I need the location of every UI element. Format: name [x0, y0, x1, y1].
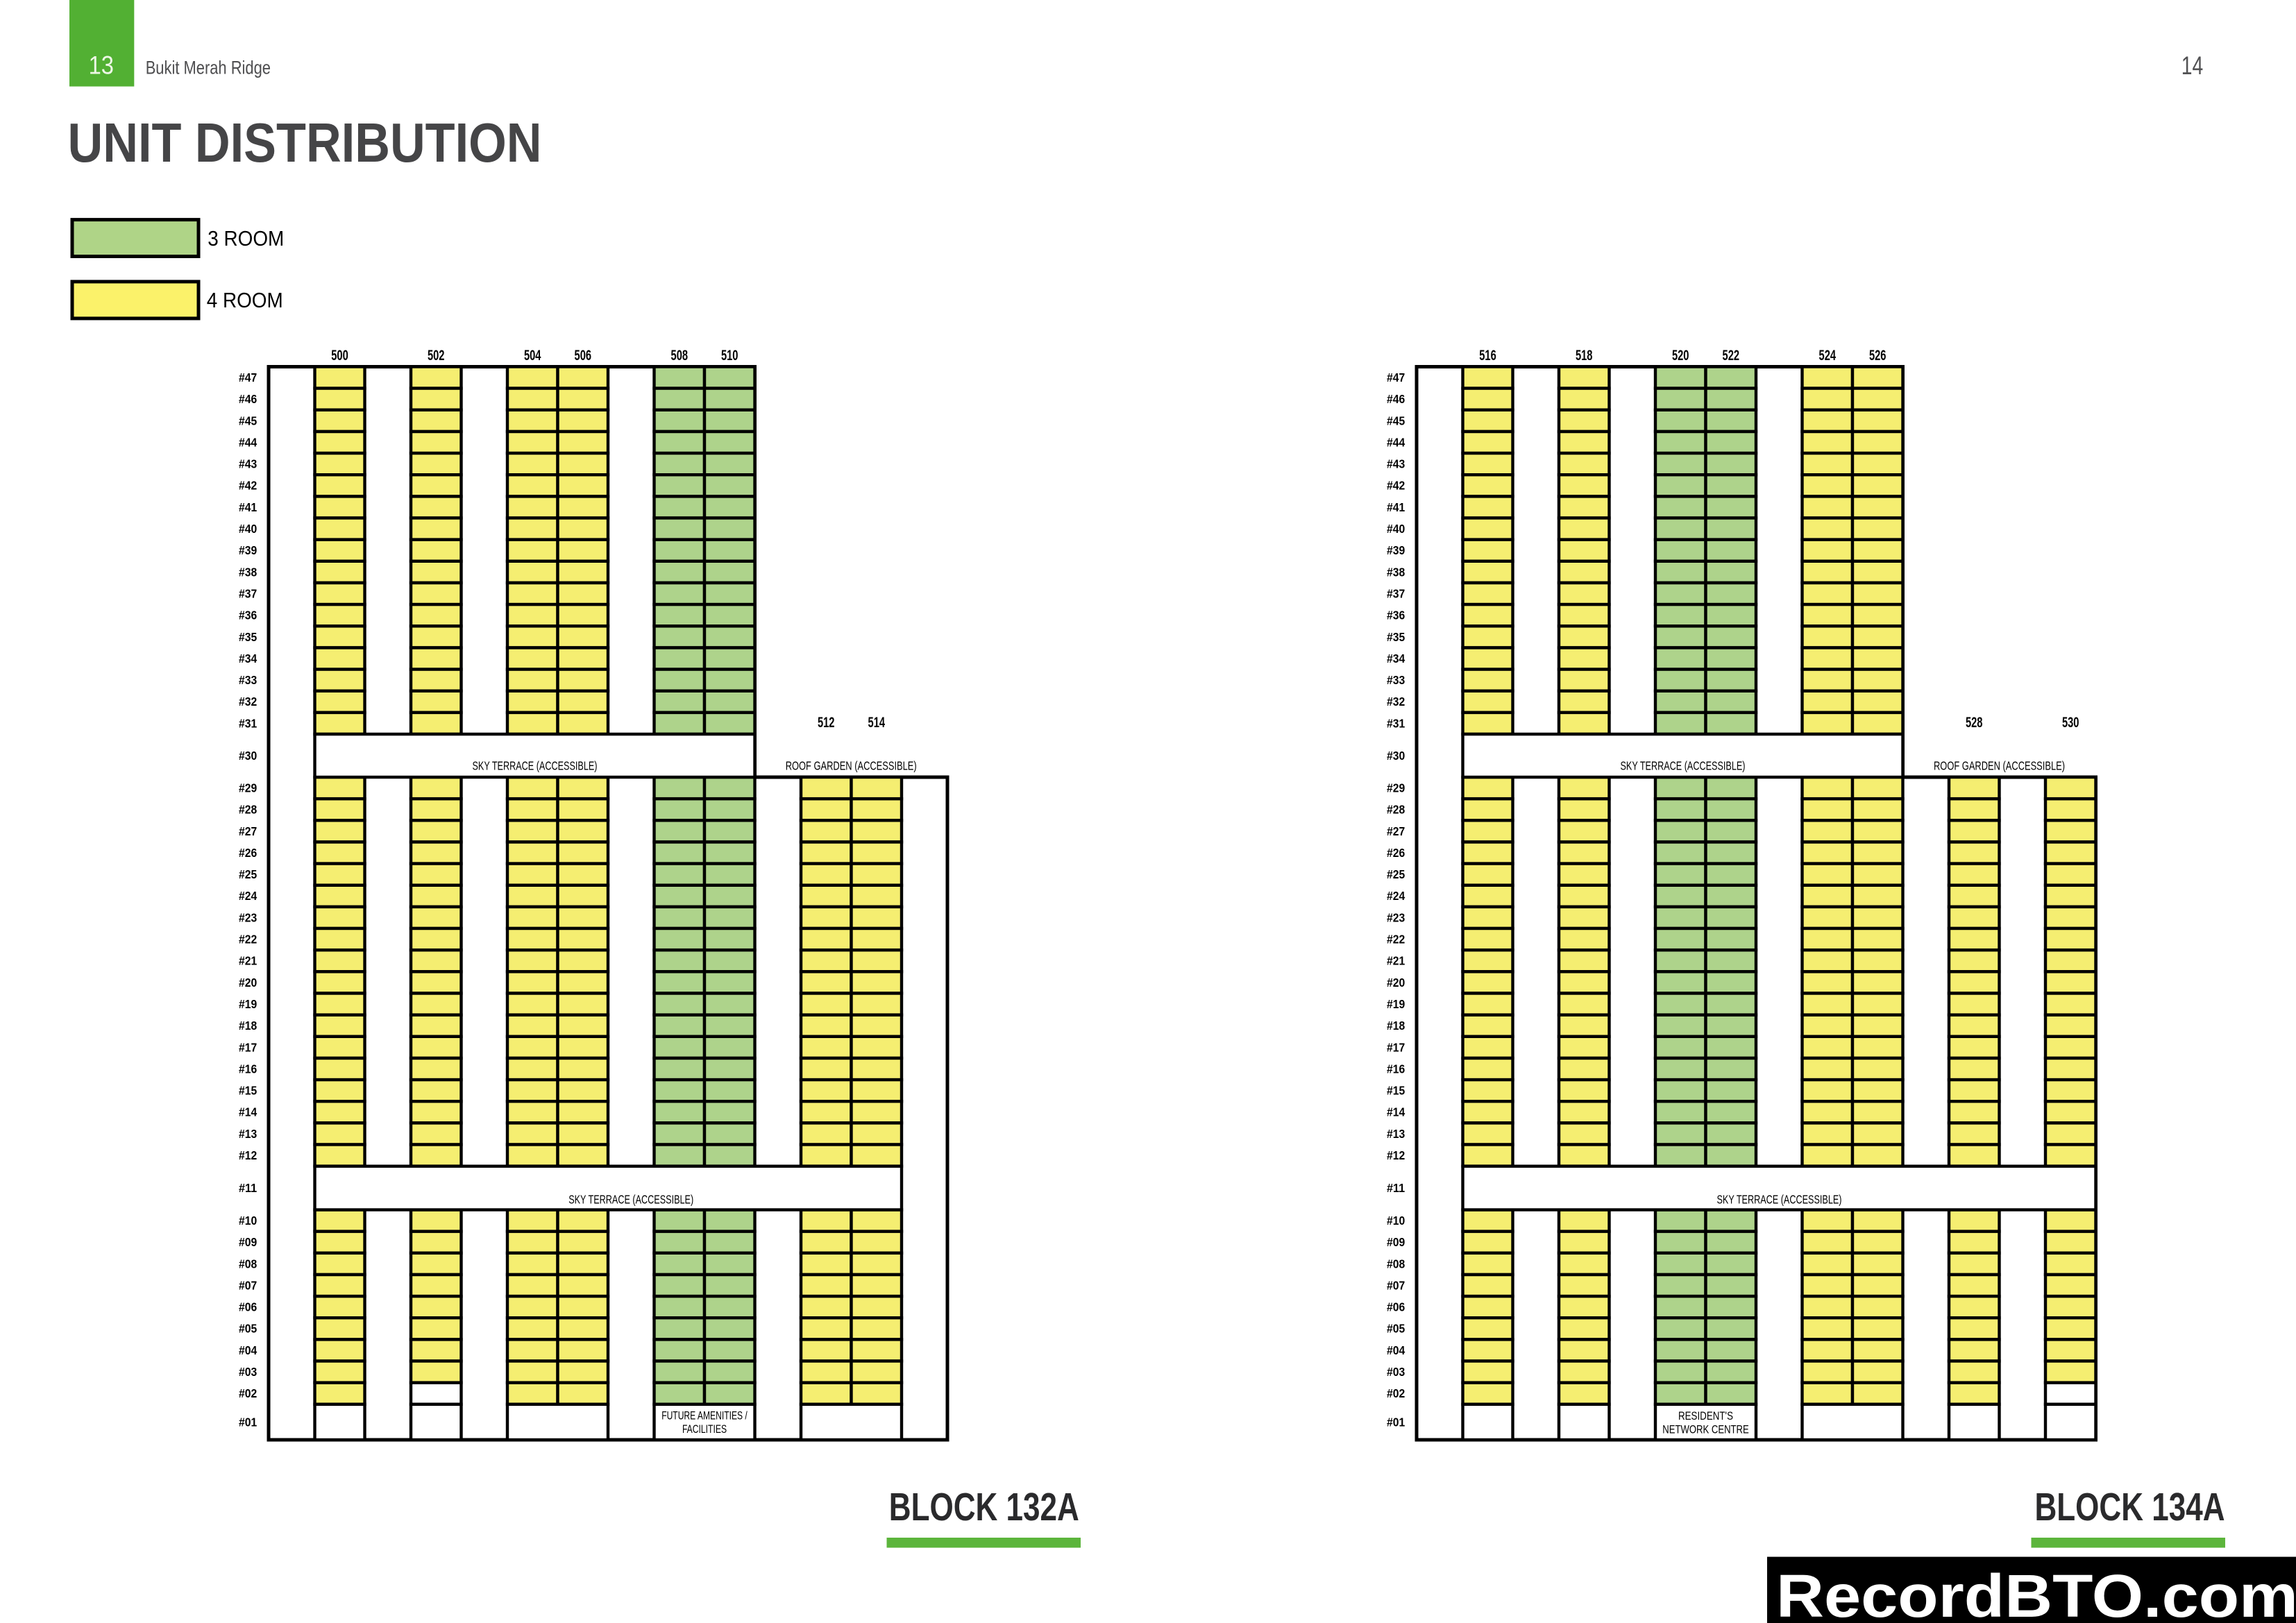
- svg-text:#32: #32: [1387, 695, 1405, 708]
- svg-text:#32: #32: [239, 695, 257, 708]
- svg-text:#40: #40: [1387, 522, 1405, 536]
- svg-text:#25: #25: [239, 867, 258, 881]
- svg-text:ROOF GARDEN (ACCESSIBLE): ROOF GARDEN (ACCESSIBLE): [1934, 759, 2065, 773]
- svg-text:NETWORK CENTRE: NETWORK CENTRE: [1662, 1422, 1749, 1436]
- svg-text:506: 506: [575, 347, 592, 364]
- svg-text:516: 516: [1479, 347, 1496, 364]
- svg-text:#08: #08: [239, 1257, 258, 1271]
- svg-text:13: 13: [89, 51, 114, 80]
- svg-text:#03: #03: [1387, 1365, 1405, 1379]
- svg-text:#41: #41: [239, 500, 258, 514]
- svg-text:#26: #26: [1387, 846, 1405, 860]
- svg-text:FACILITIES: FACILITIES: [682, 1422, 727, 1436]
- svg-text:#40: #40: [239, 522, 257, 536]
- svg-text:#02: #02: [239, 1386, 257, 1400]
- svg-text:#44: #44: [1387, 435, 1406, 449]
- svg-text:#06: #06: [1387, 1300, 1405, 1314]
- svg-text:500: 500: [331, 347, 348, 364]
- svg-text:#22: #22: [239, 933, 257, 946]
- svg-text:502: 502: [428, 347, 445, 364]
- svg-text:ROOF GARDEN (ACCESSIBLE): ROOF GARDEN (ACCESSIBLE): [786, 759, 917, 773]
- svg-text:#14: #14: [239, 1105, 258, 1119]
- svg-text:#35: #35: [1387, 630, 1406, 644]
- svg-text:BLOCK 132A: BLOCK 132A: [889, 1485, 1079, 1529]
- svg-text:#14: #14: [1387, 1105, 1406, 1119]
- svg-text:524: 524: [1819, 347, 1837, 364]
- svg-text:#45: #45: [239, 414, 258, 427]
- svg-text:Bukit Merah Ridge: Bukit Merah Ridge: [146, 58, 271, 78]
- svg-text:#01: #01: [1387, 1415, 1406, 1429]
- svg-text:#11: #11: [239, 1181, 258, 1195]
- svg-text:#47: #47: [239, 371, 257, 384]
- svg-text:#08: #08: [1387, 1257, 1406, 1271]
- svg-text:#43: #43: [239, 457, 257, 471]
- svg-text:#15: #15: [239, 1084, 258, 1098]
- svg-text:#33: #33: [1387, 673, 1405, 687]
- svg-text:#02: #02: [1387, 1386, 1405, 1400]
- svg-text:#10: #10: [1387, 1214, 1405, 1227]
- svg-text:#31: #31: [1387, 716, 1406, 730]
- svg-text:512: 512: [818, 714, 835, 731]
- svg-text:#27: #27: [1387, 824, 1405, 838]
- svg-text:#24: #24: [239, 889, 258, 903]
- svg-text:SKY TERRACE (ACCESSIBLE): SKY TERRACE (ACCESSIBLE): [473, 759, 598, 773]
- svg-text:#05: #05: [239, 1322, 258, 1336]
- svg-text:#39: #39: [239, 543, 257, 557]
- svg-text:#36: #36: [1387, 609, 1405, 622]
- svg-text:#21: #21: [239, 954, 258, 968]
- svg-text:#47: #47: [1387, 371, 1405, 384]
- svg-text:#19: #19: [239, 997, 257, 1011]
- svg-text:#03: #03: [239, 1365, 257, 1379]
- svg-text:#43: #43: [1387, 457, 1405, 471]
- svg-text:528: 528: [1966, 714, 1983, 731]
- svg-text:#21: #21: [1387, 954, 1406, 968]
- svg-text:#25: #25: [1387, 867, 1406, 881]
- svg-text:#34: #34: [239, 652, 258, 665]
- svg-text:3 ROOM: 3 ROOM: [208, 227, 284, 250]
- svg-text:#36: #36: [239, 609, 257, 622]
- svg-text:#38: #38: [239, 565, 258, 579]
- svg-text:#30: #30: [1387, 749, 1405, 763]
- svg-text:#42: #42: [239, 479, 257, 493]
- svg-text:#16: #16: [239, 1062, 257, 1076]
- svg-text:#12: #12: [1387, 1148, 1405, 1162]
- svg-text:#09: #09: [1387, 1235, 1405, 1249]
- svg-text:#15: #15: [1387, 1084, 1406, 1098]
- svg-text:RecordBTO.com: RecordBTO.com: [1776, 1563, 2296, 1623]
- svg-text:#18: #18: [1387, 1019, 1406, 1033]
- svg-text:#28: #28: [1387, 803, 1406, 817]
- svg-text:522: 522: [1723, 347, 1740, 364]
- svg-text:#41: #41: [1387, 500, 1406, 514]
- svg-text:14: 14: [2181, 51, 2204, 80]
- svg-text:#44: #44: [239, 435, 258, 449]
- svg-text:#33: #33: [239, 673, 257, 687]
- svg-text:#37: #37: [239, 587, 257, 601]
- svg-text:SKY TERRACE (ACCESSIBLE): SKY TERRACE (ACCESSIBLE): [1717, 1193, 1842, 1207]
- svg-text:520: 520: [1672, 347, 1689, 364]
- svg-text:#46: #46: [1387, 392, 1405, 406]
- svg-text:504: 504: [524, 347, 541, 364]
- svg-text:SKY TERRACE (ACCESSIBLE): SKY TERRACE (ACCESSIBLE): [1621, 759, 1746, 773]
- svg-text:SKY TERRACE (ACCESSIBLE): SKY TERRACE (ACCESSIBLE): [568, 1193, 693, 1207]
- svg-text:#17: #17: [239, 1040, 257, 1054]
- svg-text:#13: #13: [1387, 1127, 1405, 1141]
- svg-text:UNIT DISTRIBUTION: UNIT DISTRIBUTION: [68, 112, 542, 173]
- svg-text:518: 518: [1576, 347, 1593, 364]
- svg-text:4 ROOM: 4 ROOM: [207, 289, 283, 312]
- svg-text:#23: #23: [239, 910, 257, 924]
- svg-text:#09: #09: [239, 1235, 257, 1249]
- svg-text:#16: #16: [1387, 1062, 1405, 1076]
- svg-text:#37: #37: [1387, 587, 1405, 601]
- svg-text:#13: #13: [239, 1127, 257, 1141]
- svg-text:#38: #38: [1387, 565, 1406, 579]
- svg-text:#12: #12: [239, 1148, 257, 1162]
- svg-text:#07: #07: [239, 1278, 257, 1292]
- svg-text:#11: #11: [1387, 1181, 1406, 1195]
- svg-text:#28: #28: [239, 803, 258, 817]
- svg-text:#01: #01: [239, 1415, 258, 1429]
- svg-text:#20: #20: [1387, 976, 1405, 989]
- svg-text:#23: #23: [1387, 910, 1405, 924]
- svg-text:BLOCK 134A: BLOCK 134A: [2035, 1485, 2225, 1529]
- svg-text:#35: #35: [239, 630, 258, 644]
- svg-text:#29: #29: [239, 781, 257, 795]
- svg-text:514: 514: [868, 714, 886, 731]
- svg-text:#17: #17: [1387, 1040, 1405, 1054]
- svg-text:#10: #10: [239, 1214, 257, 1227]
- svg-text:530: 530: [2062, 714, 2079, 731]
- svg-text:#20: #20: [239, 976, 257, 989]
- svg-text:#19: #19: [1387, 997, 1405, 1011]
- svg-text:#42: #42: [1387, 479, 1405, 493]
- svg-text:#04: #04: [1387, 1343, 1406, 1357]
- svg-text:#30: #30: [239, 749, 257, 763]
- svg-text:#05: #05: [1387, 1322, 1406, 1336]
- svg-text:#26: #26: [239, 846, 257, 860]
- svg-text:508: 508: [671, 347, 689, 364]
- svg-text:510: 510: [721, 347, 738, 364]
- svg-text:#29: #29: [1387, 781, 1405, 795]
- svg-text:#45: #45: [1387, 414, 1406, 427]
- svg-text:#27: #27: [239, 824, 257, 838]
- svg-text:526: 526: [1869, 347, 1886, 364]
- svg-text:#18: #18: [239, 1019, 258, 1033]
- svg-text:RESIDENT'S: RESIDENT'S: [1678, 1409, 1733, 1422]
- svg-text:#22: #22: [1387, 933, 1405, 946]
- svg-text:#06: #06: [239, 1300, 257, 1314]
- svg-text:#34: #34: [1387, 652, 1406, 665]
- svg-text:#04: #04: [239, 1343, 258, 1357]
- svg-text:#46: #46: [239, 392, 257, 406]
- svg-text:FUTURE AMENITIES /: FUTURE AMENITIES /: [661, 1409, 748, 1422]
- svg-text:#24: #24: [1387, 889, 1406, 903]
- svg-text:#39: #39: [1387, 543, 1405, 557]
- svg-text:#07: #07: [1387, 1278, 1405, 1292]
- svg-text:#31: #31: [239, 716, 258, 730]
